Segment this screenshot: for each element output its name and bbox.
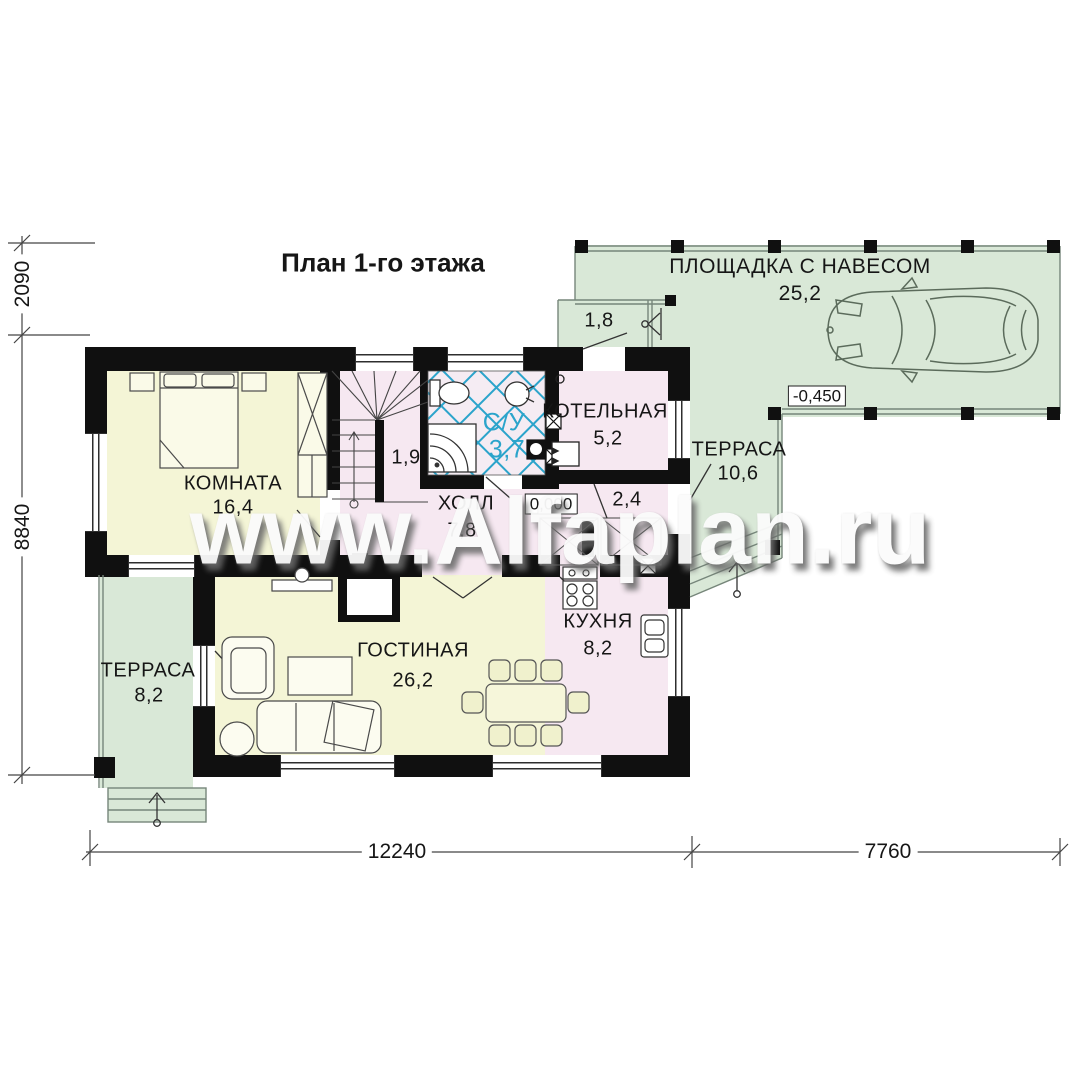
elevation-canopy: -0,450	[788, 386, 846, 407]
boiler-area: 5,2	[593, 428, 622, 451]
window-boiler-east	[668, 400, 690, 459]
terrace-left-area: 8,2	[134, 685, 163, 708]
door-entrance	[583, 347, 625, 371]
kitchen-floor	[545, 575, 668, 755]
window-top-1	[355, 347, 414, 371]
boiler-name: КОТЕЛЬНАЯ	[542, 401, 668, 424]
living-area: 26,2	[393, 670, 434, 693]
dim-left-main: 8840	[11, 498, 35, 557]
door-living-terrace	[193, 645, 215, 707]
terrace-left-name: ТЕРРАСА	[101, 660, 196, 683]
wall-bath-west	[420, 371, 428, 475]
porch-area: 1,8	[584, 310, 613, 333]
floor-plan: План 1-го этажа ПЛОЩАДКА С НАВЕСОМ 25,2 …	[0, 0, 1080, 1080]
window-living-south-1	[280, 755, 395, 777]
terrace-left-steps	[108, 788, 206, 822]
stair-closet-area: 1,9	[391, 447, 420, 470]
kitchen-name: КУХНЯ	[563, 611, 632, 634]
canopy-area: 25,2	[779, 282, 822, 306]
window-kitchen-east	[668, 608, 690, 697]
bath-area: 3,7	[489, 436, 525, 465]
dim-bottom-left: 12240	[362, 840, 432, 864]
page-title: План 1-го этажа	[281, 248, 485, 279]
bath-name: С/У	[483, 409, 525, 438]
living-floor	[215, 575, 545, 755]
window-bedroom-west	[85, 433, 107, 532]
kitchen-area: 8,2	[583, 638, 612, 661]
window-living-south-2	[492, 755, 602, 777]
watermark: www.Alfaplan.ru	[190, 478, 931, 587]
window-top-2	[447, 347, 524, 371]
wall-bottom	[193, 755, 690, 777]
terrace-left-area	[100, 577, 193, 788]
window-bedroom-south	[128, 555, 195, 577]
canopy-name: ПЛОЩАДКА С НАВЕСОМ	[669, 255, 931, 279]
dim-left-top: 2090	[11, 255, 35, 314]
living-name: ГОСТИНАЯ	[357, 640, 469, 663]
terrace-right-name: ТЕРРАСА	[692, 439, 787, 462]
dim-bottom-right: 7760	[859, 840, 918, 864]
